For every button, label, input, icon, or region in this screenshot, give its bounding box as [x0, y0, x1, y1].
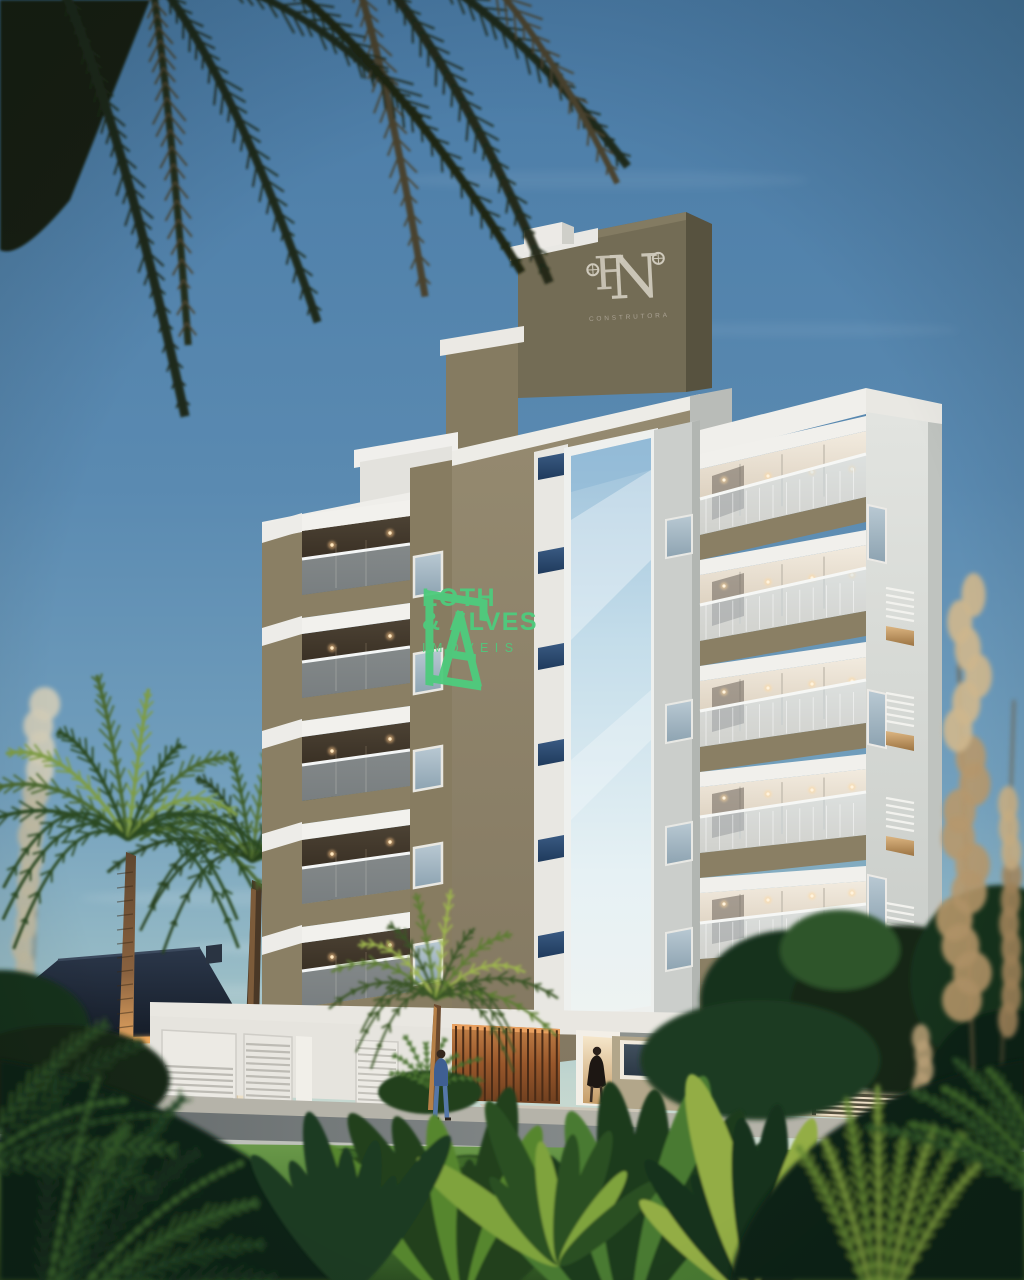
scene-canvas: F N CONSTRUTORA [0, 0, 1024, 1280]
architectural-render: F N CONSTRUTORA [0, 0, 1024, 1280]
vignette [0, 0, 1024, 1280]
